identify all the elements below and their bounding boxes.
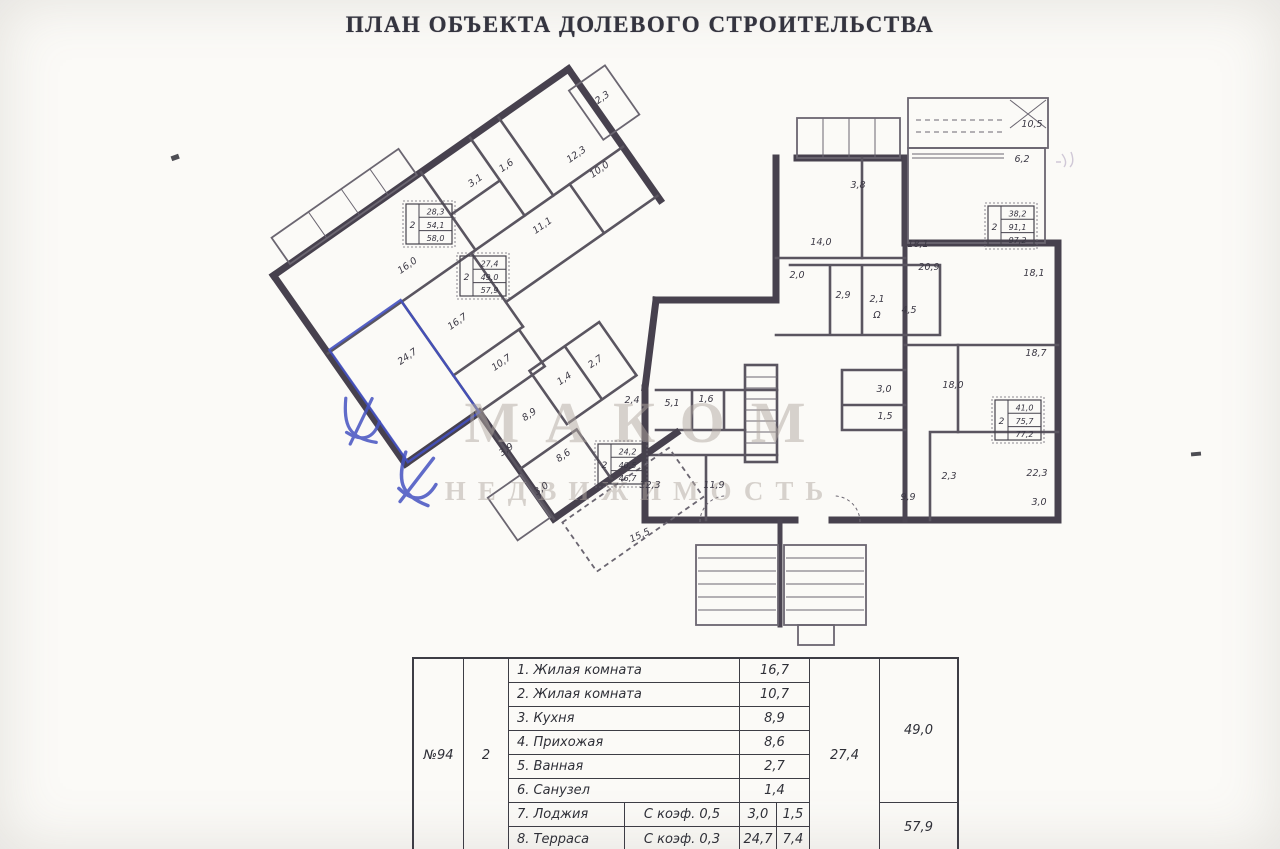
area-label: 20,9 <box>918 262 939 273</box>
table-cell-room-area: 3,0 <box>740 803 777 827</box>
area-label: 2,9 <box>835 290 850 301</box>
pen-x-mark <box>398 452 438 506</box>
stamp-area-value: 46,7 <box>619 474 638 483</box>
svg-text:МАКОМ: МАКОМ <box>464 390 831 455</box>
area-label: 15,5 <box>628 526 652 545</box>
area-label: 2,3 <box>941 471 956 482</box>
area-label: 1,6 <box>497 157 516 175</box>
area-label: Ω <box>872 310 881 321</box>
area-label: 18,1 <box>1023 268 1044 279</box>
area-label: 1,4 <box>555 370 574 388</box>
area-label: 12,3 <box>565 144 589 165</box>
stamp-area-value: 54,1 <box>427 221 445 230</box>
area-label: 3,0 <box>876 384 891 395</box>
scanned-plan-page: ПЛАН ОБЪЕКТА ДОЛЕВОГО СТРОИТЕЛЬСТВА <box>0 0 1280 849</box>
pencil-mark <box>1056 152 1073 167</box>
table-cell-room-name: 5. Ванная <box>509 755 740 779</box>
area-label: 18,0 <box>942 380 963 391</box>
area-label: 6,2 <box>1014 154 1029 165</box>
table-living-total: 27,4 <box>810 659 880 849</box>
area-label: 2,0 <box>789 270 804 281</box>
area-label: 11,9 <box>703 480 724 491</box>
area-label: 22,3 <box>1026 468 1047 479</box>
scan-artifact <box>1191 452 1201 457</box>
area-label: 2,4 <box>624 395 639 406</box>
stamp-rooms-count: 2 <box>602 461 608 471</box>
table-cell-room-name: 8. Терраса <box>509 827 625 849</box>
table-cell-room-name: 6. Санузел <box>509 779 740 803</box>
apartment-stamp: 241,075,777,2 <box>992 397 1044 443</box>
table-rooms-count: 2 <box>464 659 509 849</box>
scan-artifact <box>171 154 180 161</box>
stamp-area-value: 40,5 <box>619 461 637 470</box>
area-label: 9,9 <box>900 492 915 503</box>
table-apartment-number: №94 <box>414 659 464 849</box>
area-label: 1,5 <box>877 411 892 422</box>
area-label: 4,5 <box>901 305 916 316</box>
area-label: 3,1 <box>466 172 485 190</box>
table-total-area: 49,0 <box>880 659 957 803</box>
table-cell-reduced-area: 1,5 <box>777 803 810 827</box>
area-label: 2,1 <box>869 294 884 305</box>
area-label: 18,1 <box>907 239 928 250</box>
stamp-area-value: 58,0 <box>427 234 445 243</box>
area-label: 14,0 <box>810 237 831 248</box>
table-cell-room-name: 3. Кухня <box>509 707 740 731</box>
stamp-area-value: 24,2 <box>619 448 637 457</box>
table-cell-room-name: 2. Жилая комната <box>509 683 740 707</box>
stamp-area-value: 57,9 <box>481 286 499 295</box>
table-cell-room-area: 24,7 <box>740 827 777 849</box>
area-label: 3,8 <box>850 180 865 191</box>
balcony-top <box>797 118 900 158</box>
stamp-area-value: 91,1 <box>1009 223 1027 232</box>
stamp-area-value: 75,7 <box>1016 417 1035 426</box>
table-cell-room-area: 16,7 <box>740 659 810 683</box>
table-cell-reduced-area: 7,4 <box>777 827 810 849</box>
stamp-area-value: 41,0 <box>1016 404 1034 413</box>
area-label: 12,3 <box>639 480 660 491</box>
stamp-area-value: 77,2 <box>1016 430 1034 439</box>
table-cell-coefficient: С коэф. 0,5 <box>625 803 740 827</box>
table-cell-room-area: 1,4 <box>740 779 810 803</box>
stamp-area-value: 38,2 <box>1009 210 1027 219</box>
stamp-rooms-count: 2 <box>410 221 416 231</box>
stamp-rooms-count: 2 <box>999 417 1005 427</box>
table-cell-room-area: 8,9 <box>740 707 810 731</box>
table-cell-room-area: 2,7 <box>740 755 810 779</box>
stamp-area-value: 28,3 <box>427 208 445 217</box>
stamp-rooms-count: 2 <box>464 273 470 283</box>
area-label: 18,7 <box>1025 348 1046 359</box>
apartment-stamp: 227,449,057,9 <box>457 253 509 299</box>
area-label: 16,0 <box>396 255 420 276</box>
area-label: 10,5 <box>1021 119 1042 130</box>
area-label: 10,0 <box>588 159 612 180</box>
area-label: 24,7 <box>396 346 420 367</box>
area-label: 11,1 <box>531 215 555 236</box>
table-cell-room-name: 1. Жилая комната <box>509 659 740 683</box>
table-cell-coefficient: С коэф. 0,3 <box>625 827 740 849</box>
stamp-area-value: 49,0 <box>481 273 499 282</box>
apartment-table: №94 2 27,4 49,0 57,9 1. Жилая комната16,… <box>412 657 959 849</box>
stamp-area-value: 97,2 <box>1009 236 1027 245</box>
table-cell-room-name: 4. Прихожая <box>509 731 740 755</box>
area-label: 16,7 <box>446 311 470 332</box>
area-label: 3,0 <box>1031 497 1046 508</box>
stamp-area-value: 27,4 <box>481 260 499 269</box>
area-label: 5,1 <box>664 398 679 409</box>
table-cell-room-area: 10,7 <box>740 683 810 707</box>
area-label: 1,6 <box>698 394 713 405</box>
area-label: 10,7 <box>490 352 514 373</box>
table-cell-room-area: 8,6 <box>740 731 810 755</box>
left-wing-walls <box>255 24 840 626</box>
area-label: 2,7 <box>586 353 605 371</box>
stamp-rooms-count: 2 <box>992 223 998 233</box>
table-cell-room-name: 7. Лоджия <box>509 803 625 827</box>
table-total-with-cold: 57,9 <box>880 803 957 849</box>
